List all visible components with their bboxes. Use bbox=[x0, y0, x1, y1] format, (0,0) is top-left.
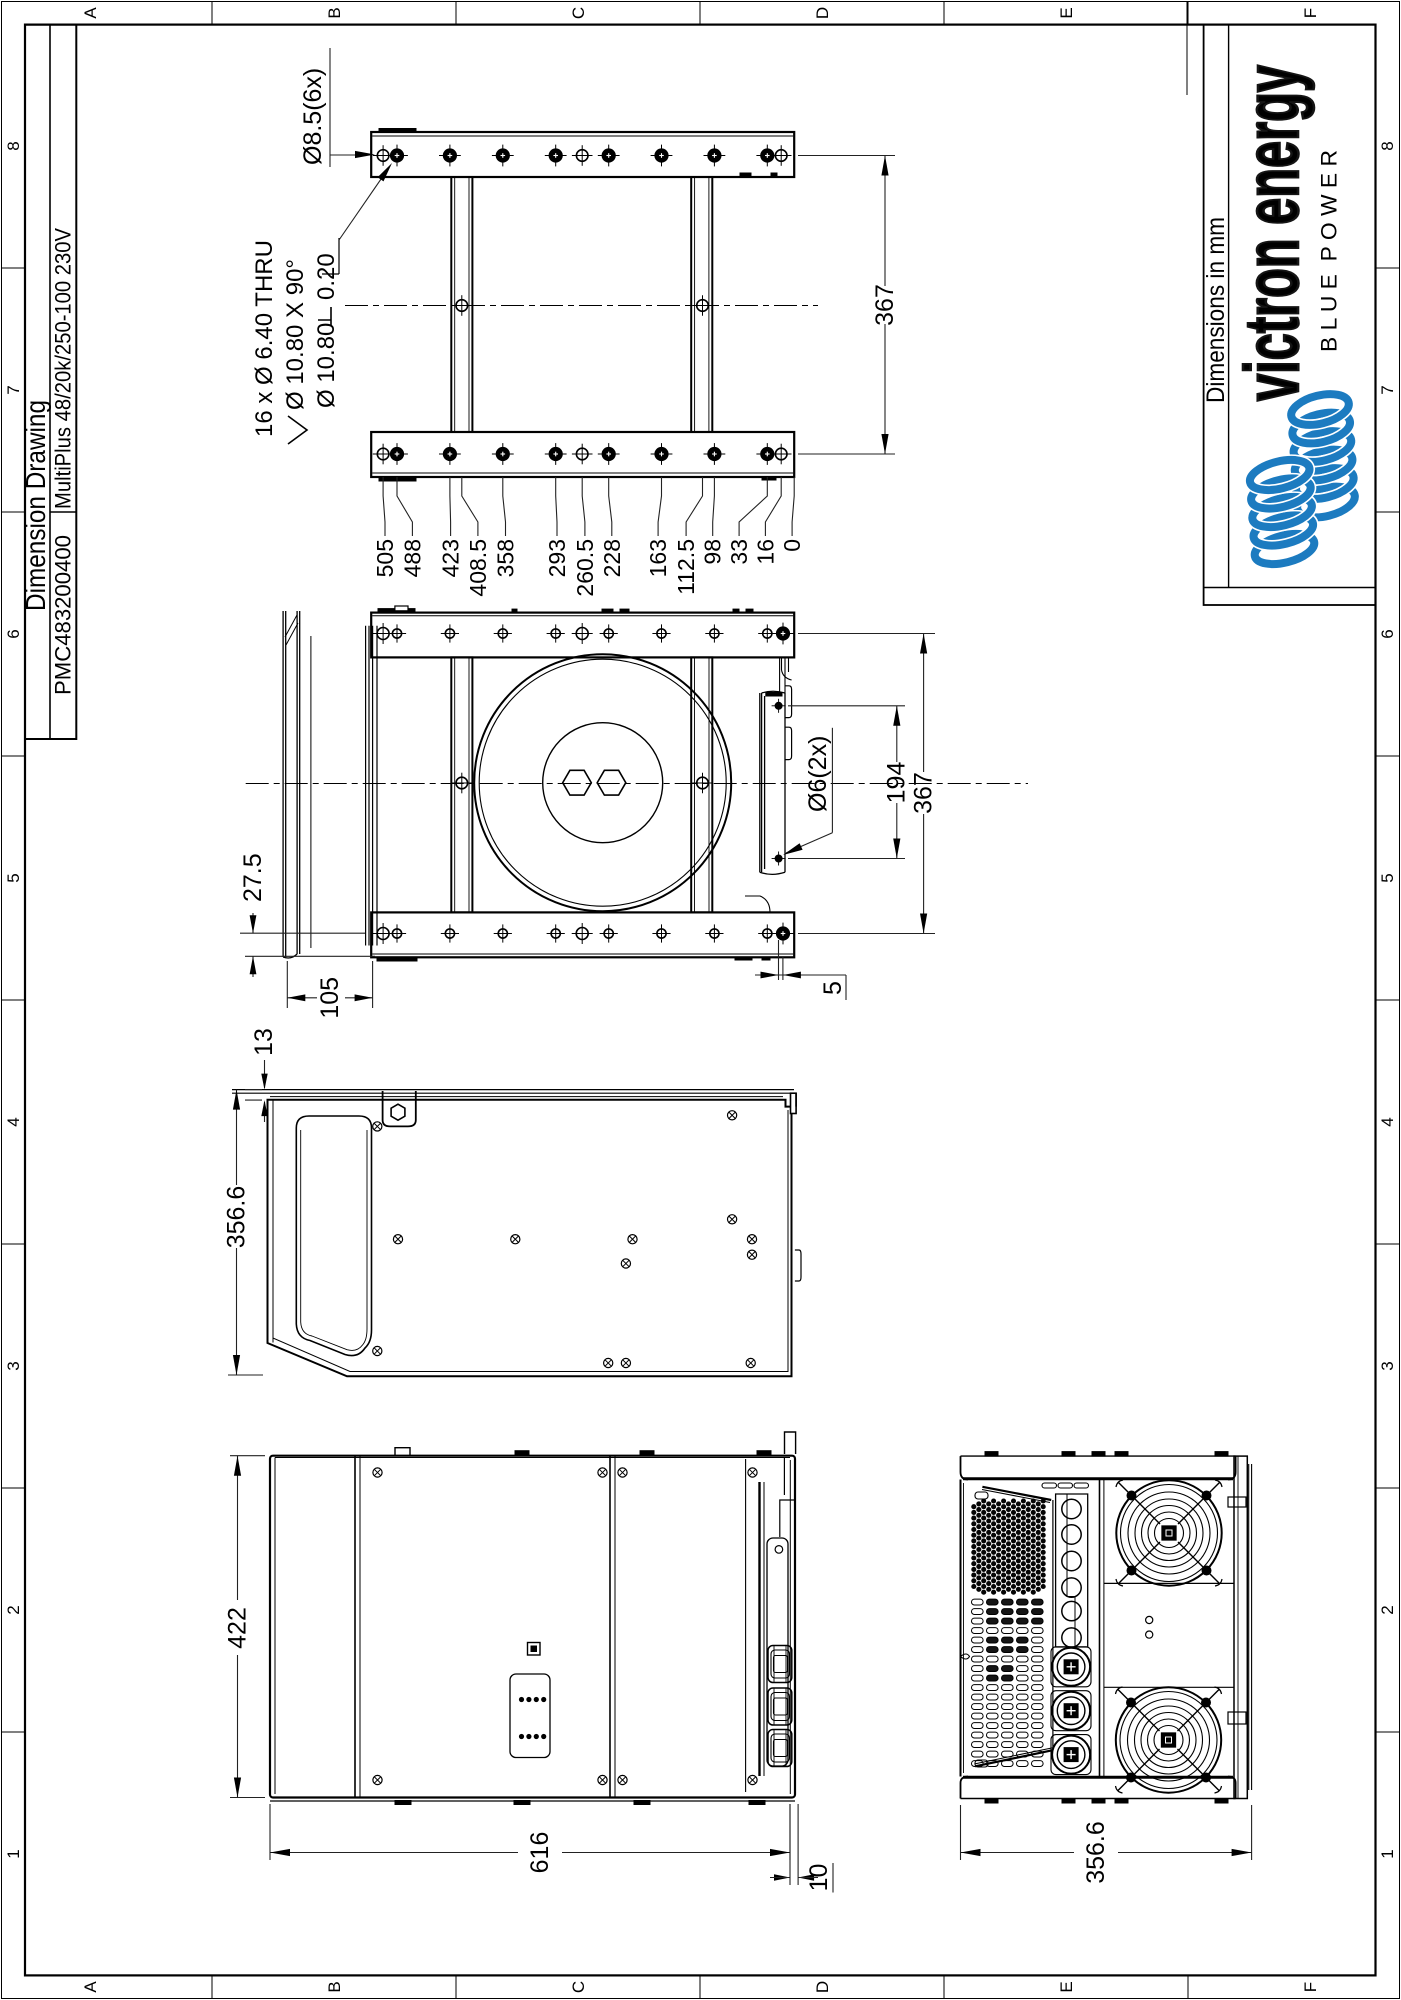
svg-text:5: 5 bbox=[819, 981, 847, 995]
svg-text:194: 194 bbox=[883, 762, 911, 804]
svg-text:F: F bbox=[1301, 1982, 1320, 1992]
svg-text:C: C bbox=[569, 1981, 588, 1993]
svg-text:Dimension Drawing: Dimension Drawing bbox=[20, 400, 51, 611]
svg-text:616: 616 bbox=[526, 1832, 554, 1874]
svg-text:E: E bbox=[1057, 1981, 1076, 1992]
svg-text:488: 488 bbox=[399, 539, 425, 577]
svg-text:293: 293 bbox=[544, 539, 570, 577]
svg-text:408.5: 408.5 bbox=[465, 539, 491, 597]
svg-text:Ø 10.80 X 90°: Ø 10.80 X 90° bbox=[282, 259, 309, 410]
svg-text:6: 6 bbox=[1378, 629, 1397, 638]
svg-text:6: 6 bbox=[4, 629, 23, 638]
svg-text:Ø6(2x): Ø6(2x) bbox=[804, 736, 832, 812]
svg-text:5: 5 bbox=[1378, 873, 1397, 882]
svg-text:33: 33 bbox=[726, 539, 752, 565]
svg-text:MultiPlus 48/20k/250-100 230V: MultiPlus 48/20k/250-100 230V bbox=[51, 228, 76, 509]
svg-text:1: 1 bbox=[4, 1849, 23, 1858]
svg-text:3: 3 bbox=[1378, 1361, 1397, 1370]
svg-text:16: 16 bbox=[752, 539, 778, 565]
svg-text:4: 4 bbox=[4, 1117, 23, 1126]
svg-text:B: B bbox=[325, 1981, 344, 1992]
svg-text:Ø 10.80: Ø 10.80 bbox=[313, 323, 340, 408]
svg-text:Dimensions in mm: Dimensions in mm bbox=[1202, 217, 1230, 403]
svg-text:A: A bbox=[81, 7, 100, 19]
svg-text:PMC483200400: PMC483200400 bbox=[51, 535, 76, 695]
svg-text:10: 10 bbox=[805, 1864, 833, 1892]
svg-text:E: E bbox=[1057, 7, 1076, 18]
svg-text:27.5: 27.5 bbox=[239, 853, 267, 902]
svg-text:105: 105 bbox=[316, 977, 344, 1019]
svg-text:5: 5 bbox=[4, 873, 23, 882]
svg-text:358: 358 bbox=[493, 539, 519, 577]
svg-text:A: A bbox=[81, 1981, 100, 1993]
svg-text:D: D bbox=[813, 1981, 832, 1993]
svg-text:422: 422 bbox=[224, 1607, 252, 1649]
svg-text:C: C bbox=[569, 7, 588, 19]
svg-text:367: 367 bbox=[871, 284, 899, 326]
svg-text:F: F bbox=[1301, 8, 1320, 18]
svg-text:4: 4 bbox=[1378, 1117, 1397, 1126]
svg-text:2: 2 bbox=[1378, 1605, 1397, 1614]
svg-text:260.5: 260.5 bbox=[572, 539, 598, 597]
svg-text:3: 3 bbox=[4, 1361, 23, 1370]
svg-text:16 x Ø 6.40 THRU: 16 x Ø 6.40 THRU bbox=[251, 240, 278, 437]
svg-text:2: 2 bbox=[4, 1605, 23, 1614]
svg-text:112.5: 112.5 bbox=[673, 539, 699, 595]
svg-text:1: 1 bbox=[1378, 1849, 1397, 1858]
svg-text:7: 7 bbox=[1378, 385, 1397, 394]
svg-text:8: 8 bbox=[4, 141, 23, 150]
svg-text:163: 163 bbox=[645, 539, 671, 577]
svg-text:423: 423 bbox=[438, 539, 464, 577]
svg-text:228: 228 bbox=[599, 539, 625, 577]
svg-text:356.6: 356.6 bbox=[223, 1186, 251, 1249]
svg-text:356.6: 356.6 bbox=[1082, 1821, 1110, 1884]
svg-text:505: 505 bbox=[372, 539, 398, 577]
svg-text:13: 13 bbox=[250, 1028, 278, 1056]
svg-text:D: D bbox=[813, 7, 832, 19]
svg-text:0: 0 bbox=[779, 539, 805, 552]
svg-text:8: 8 bbox=[1378, 141, 1397, 150]
svg-text:7: 7 bbox=[4, 385, 23, 394]
svg-text:victron energy: victron energy bbox=[1230, 65, 1315, 401]
svg-text:B L U E P O W E R: B L U E P O W E R bbox=[1317, 150, 1342, 352]
svg-text:B: B bbox=[325, 7, 344, 18]
svg-text:367: 367 bbox=[910, 772, 938, 814]
svg-text:0.20: 0.20 bbox=[313, 253, 340, 300]
svg-text:Ø8.5(6x): Ø8.5(6x) bbox=[299, 68, 327, 165]
svg-text:98: 98 bbox=[700, 539, 726, 565]
